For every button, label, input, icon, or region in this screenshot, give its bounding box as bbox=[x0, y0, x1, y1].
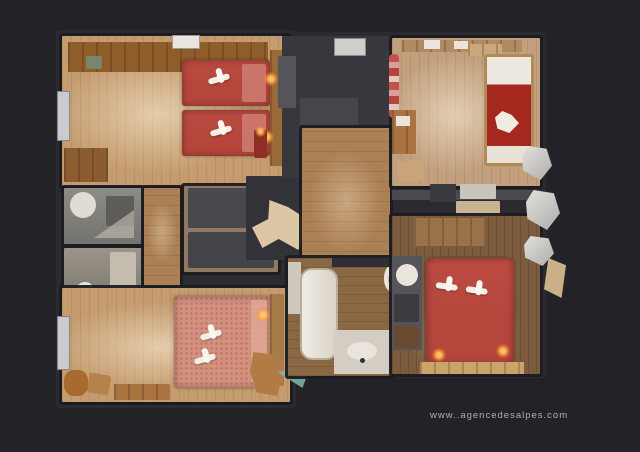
papers bbox=[396, 116, 410, 126]
bench bbox=[394, 326, 419, 348]
microwave bbox=[430, 184, 456, 202]
sink-counter bbox=[334, 330, 390, 374]
red-object bbox=[254, 130, 267, 158]
cabinet bbox=[456, 201, 500, 216]
floorplan-scene: www..agencedesalpes.com bbox=[0, 0, 640, 452]
bathroom-shower bbox=[64, 188, 142, 244]
bedroom-double-right bbox=[392, 216, 540, 374]
bedroom-single-right bbox=[392, 38, 540, 186]
wardrobe bbox=[414, 218, 486, 246]
desk bbox=[392, 110, 416, 154]
ensuite bbox=[392, 256, 422, 350]
washbasin-counter bbox=[110, 252, 136, 292]
lamp-glow bbox=[496, 344, 510, 358]
sink-basin bbox=[396, 264, 418, 286]
hallway-left bbox=[144, 188, 180, 286]
radiator bbox=[57, 316, 70, 370]
balcony bbox=[522, 146, 564, 268]
kitchenette bbox=[392, 184, 540, 218]
lamp-glow bbox=[264, 72, 278, 86]
washing-machine bbox=[394, 294, 419, 322]
vent-box bbox=[172, 35, 200, 49]
coat-rack bbox=[389, 54, 399, 118]
bathtub-icon bbox=[300, 268, 338, 360]
shower-tray bbox=[70, 192, 96, 218]
watermark: www..agencedesalpes.com bbox=[430, 410, 568, 421]
desk bbox=[114, 384, 170, 400]
towel-icon bbox=[208, 70, 232, 86]
chair bbox=[397, 158, 426, 183]
pillow bbox=[242, 64, 266, 102]
towel-icon bbox=[200, 326, 224, 342]
footboard bbox=[420, 362, 524, 374]
kitchen-sink bbox=[460, 184, 496, 199]
towel-icon bbox=[495, 111, 519, 133]
lamp-glow bbox=[255, 126, 266, 137]
balcony-chair bbox=[526, 190, 560, 230]
basket bbox=[64, 370, 88, 396]
bathroom-center bbox=[288, 258, 392, 376]
papers bbox=[454, 41, 468, 49]
tap bbox=[360, 358, 365, 363]
radiator bbox=[57, 91, 70, 141]
towel-icon bbox=[210, 122, 234, 138]
papers bbox=[424, 40, 440, 49]
cushion bbox=[86, 56, 102, 69]
lamp-glow bbox=[432, 348, 446, 362]
lamp-glow bbox=[256, 308, 270, 322]
ghost-shelf bbox=[278, 56, 296, 108]
dresser bbox=[64, 148, 108, 182]
chair bbox=[86, 372, 111, 396]
wall-strip bbox=[332, 258, 392, 267]
bedroom-twin bbox=[62, 36, 288, 186]
vent-box bbox=[334, 38, 366, 56]
towel-icon bbox=[194, 350, 218, 366]
balcony-chair bbox=[522, 146, 552, 180]
